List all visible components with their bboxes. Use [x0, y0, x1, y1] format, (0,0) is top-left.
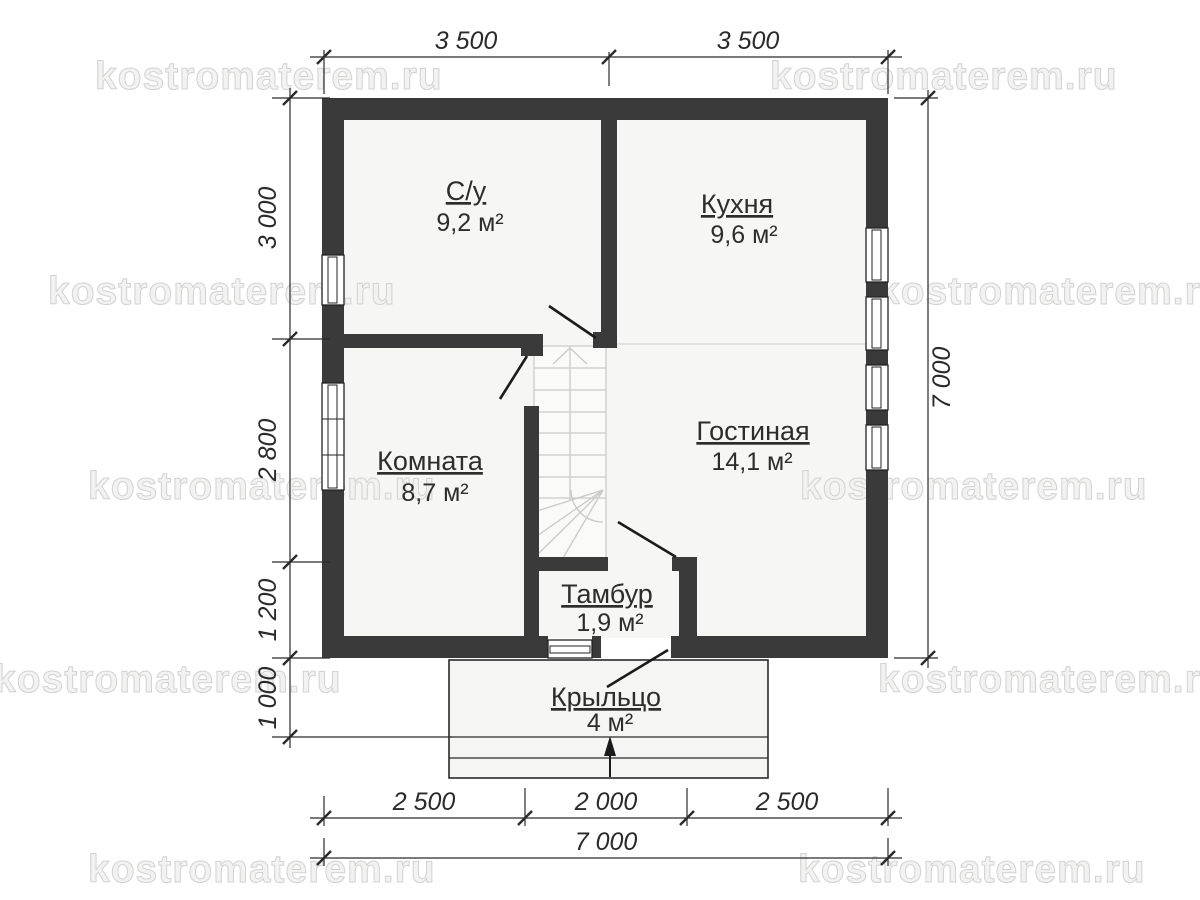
room-area-room: 8,7 м²	[401, 479, 468, 507]
dim-left-3: 1 200	[254, 579, 282, 642]
dim-bottom-3: 2 500	[755, 788, 819, 816]
dim-top-1: 3 500	[435, 27, 498, 55]
wall-outer-right	[866, 470, 888, 658]
room-area-living: 14,1 м²	[711, 448, 792, 476]
wall-outer-bottom	[322, 636, 548, 658]
dim-bottom-1: 2 500	[392, 788, 456, 816]
watermark-text: kostromaterem.ru	[878, 658, 1200, 701]
watermark-text: kostromaterem.ru	[770, 55, 1118, 98]
room-name-porch: Крыльцо	[551, 682, 661, 712]
watermark-text: kostromaterem.ru	[88, 848, 436, 891]
watermark-text: kostromaterem.ru	[95, 55, 443, 98]
window-living-1	[866, 365, 888, 410]
wall-door-jamb	[521, 334, 543, 356]
room-name-living: Гостиная	[696, 416, 809, 446]
room-name-room: Комната	[377, 446, 484, 476]
wall-outer-bottom	[671, 636, 888, 658]
window-kitchen-2	[866, 297, 888, 350]
wall-divider-foot	[593, 332, 617, 348]
dim-bottom-total: 7 000	[575, 828, 638, 856]
wall-stair-bottom	[524, 557, 608, 571]
watermark-text: kostromaterem.ru	[800, 465, 1148, 508]
wall-outer-right-pier	[866, 410, 888, 425]
dim-bottom-2: 2 000	[574, 788, 638, 816]
wall-su-bottom	[322, 334, 526, 348]
room-name-kitchen: Кухня	[701, 189, 773, 219]
dim-right-total: 7 000	[928, 347, 956, 410]
wall-room-right	[524, 406, 539, 638]
room-area-kitchen: 9,6 м²	[710, 221, 777, 249]
wall-outer-right-pier	[866, 350, 888, 365]
room-area-porch: 4 м²	[587, 709, 633, 737]
window-kitchen-1	[866, 228, 888, 282]
dim-top-2: 3 500	[717, 27, 780, 55]
dim-left-4: 1 000	[254, 667, 282, 730]
room-area-tambour: 1,9 м²	[576, 609, 643, 637]
watermark-text: kostromaterem.ru	[798, 848, 1146, 891]
dim-left-2: 2 800	[254, 419, 282, 483]
window-tambour	[548, 640, 592, 658]
dimension-right: 7 000	[894, 90, 956, 668]
dim-left-1: 3 000	[254, 187, 282, 250]
watermark-text: kostromaterem.ru	[878, 270, 1200, 313]
window-room	[322, 383, 344, 490]
window-su	[322, 255, 344, 305]
wall-outer-right	[866, 98, 888, 228]
floor-plan-drawing: kostromaterem.ru kostromaterem.ru kostro…	[0, 0, 1200, 900]
wall-outer-left	[322, 98, 344, 255]
wall-tambour-right	[679, 557, 697, 638]
room-name-su: С/у	[446, 176, 487, 206]
wall-outer-left	[322, 490, 344, 658]
wall-outer-top	[322, 98, 888, 120]
window-living-2	[866, 425, 888, 470]
wall-outer-right-pier	[866, 282, 888, 297]
floor-plan-page: kostromaterem.ru kostromaterem.ru kostro…	[0, 0, 1200, 900]
staircase	[534, 346, 606, 558]
wall-outer-bottom-pier	[592, 636, 601, 658]
room-area-su: 9,2 м²	[436, 209, 503, 237]
room-name-tambour: Тамбур	[561, 579, 653, 609]
wall-su-kitchen-divider	[601, 118, 617, 345]
